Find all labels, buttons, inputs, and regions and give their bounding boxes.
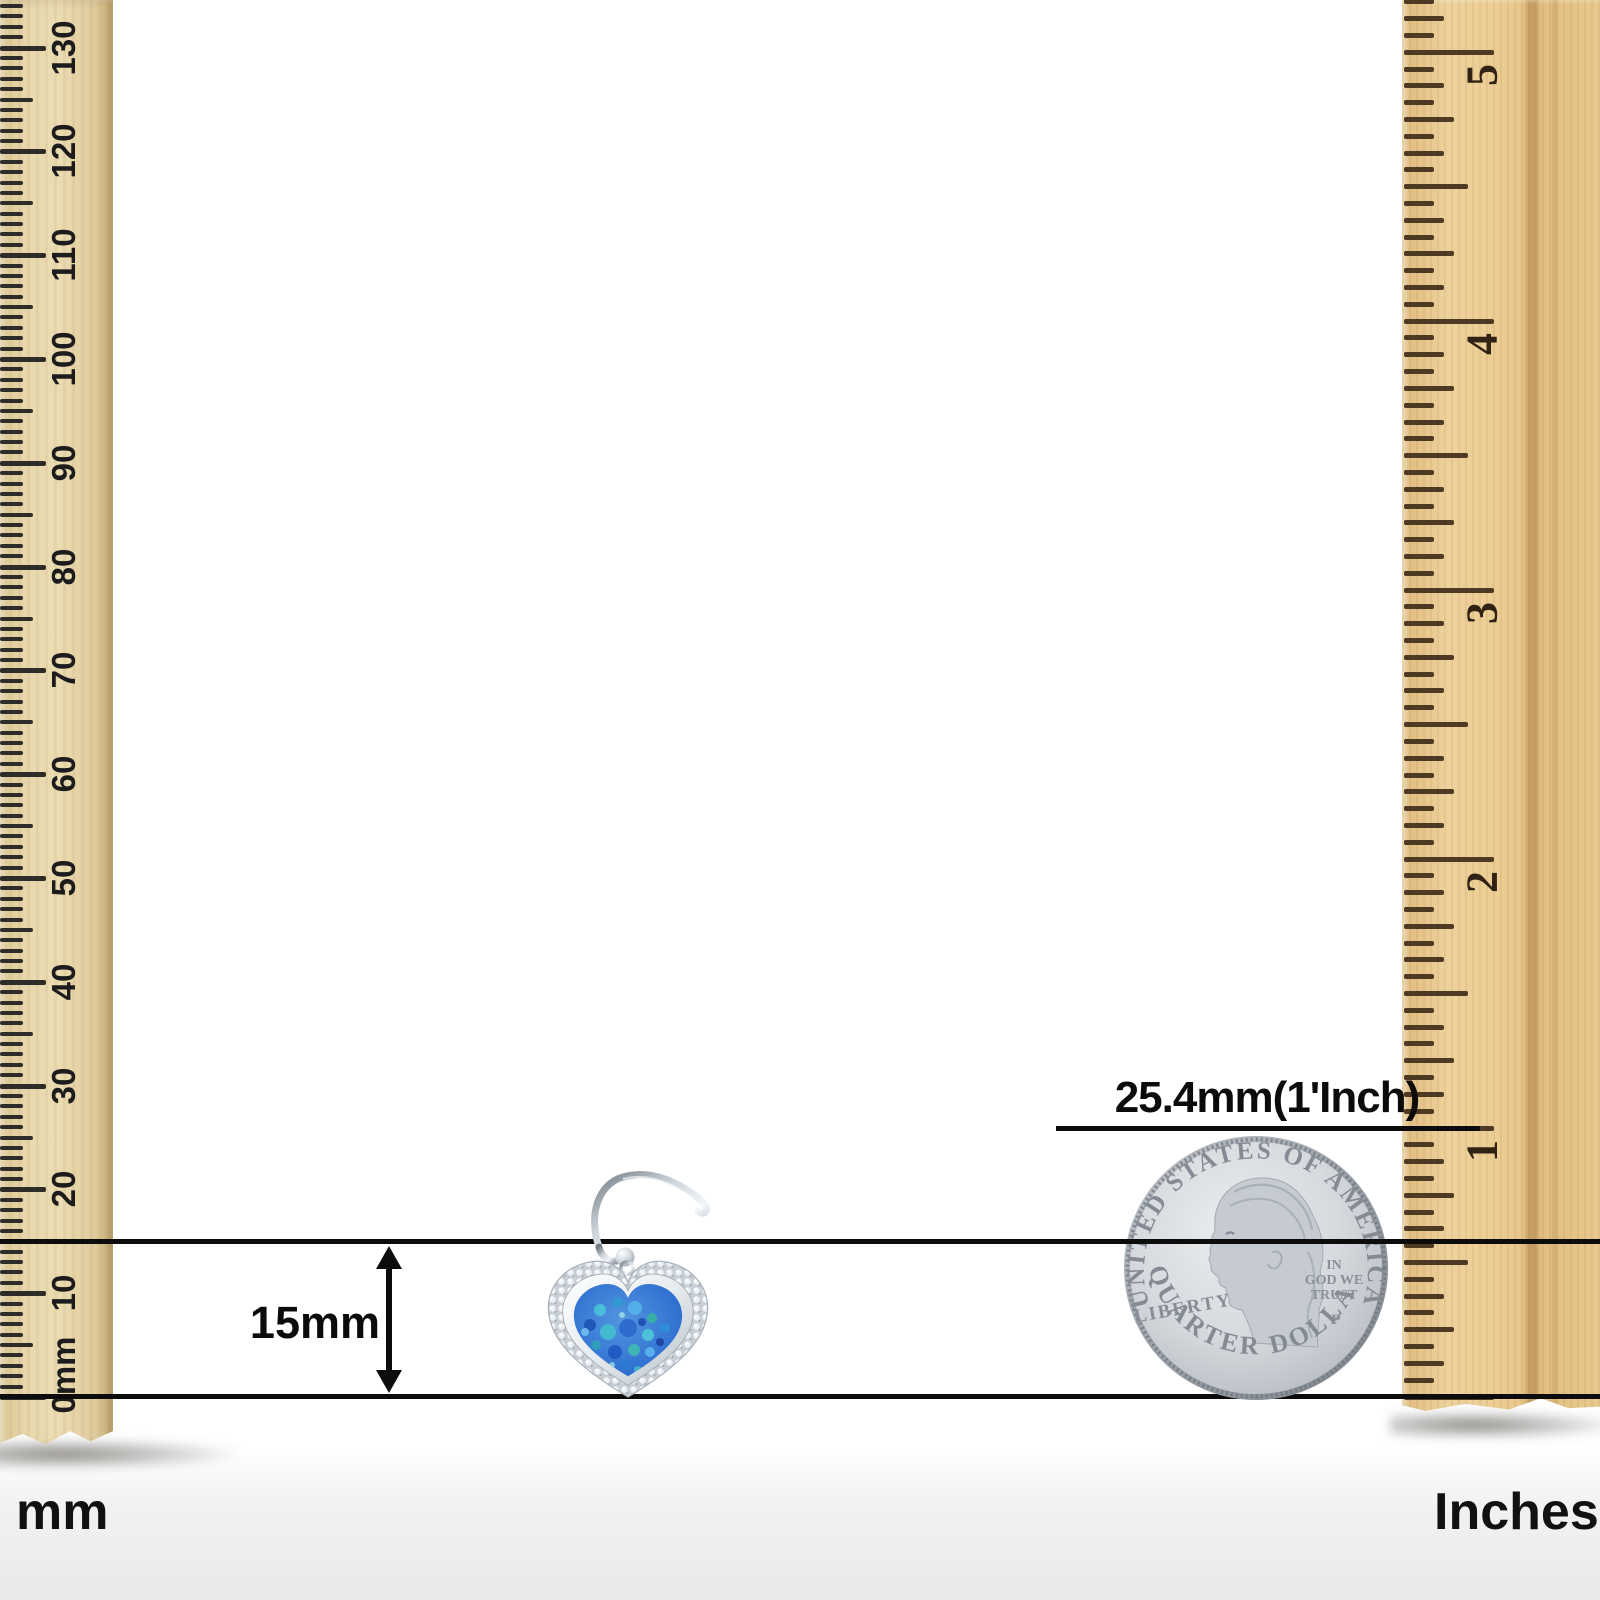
mm-tick	[0, 440, 23, 444]
size-reference-diagram: 0mm102030405060708090100110120130 12345	[0, 0, 1600, 1600]
mm-tick	[0, 1374, 23, 1378]
mm-tick	[0, 1229, 23, 1233]
inch-sub-tick	[1404, 924, 1454, 929]
mm-tick	[0, 56, 23, 60]
mm-tick	[0, 793, 23, 797]
mm-tick	[0, 938, 23, 942]
inch-sub-tick	[1404, 957, 1444, 962]
cm-tick	[0, 149, 46, 154]
mm-tick	[0, 1001, 23, 1005]
mm-tick	[0, 513, 33, 517]
mm-tick	[0, 855, 23, 859]
inch-sub-tick	[1404, 470, 1434, 475]
cm-tick	[0, 1187, 46, 1192]
inch-sub-tick	[1404, 184, 1468, 189]
mm-tick	[0, 814, 23, 818]
mm-tick	[0, 1322, 23, 1326]
inch-sub-tick	[1404, 218, 1444, 223]
mm-number-label: 80	[45, 548, 83, 585]
mm-tick	[0, 1146, 23, 1150]
coin-reference-label: 25.4mm(1'Inch)	[1080, 1073, 1454, 1123]
cm-tick	[0, 253, 46, 258]
inch-sub-tick	[1404, 823, 1444, 828]
inch-sub-tick	[1404, 907, 1434, 912]
inch-sub-tick	[1404, 403, 1434, 408]
inch-sub-tick	[1404, 167, 1434, 172]
inch-sub-tick	[1404, 1025, 1444, 1030]
inch-number-label: 4	[1457, 333, 1508, 355]
cm-tick	[0, 772, 46, 777]
mm-tick	[0, 1052, 23, 1056]
inch-sub-tick	[1404, 621, 1444, 626]
pendant-height-label: 15mm	[230, 1297, 380, 1349]
inch-sub-tick	[1404, 974, 1434, 979]
inch-sub-tick	[1404, 151, 1444, 156]
mm-tick	[0, 627, 23, 631]
inch-sub-tick	[1404, 1176, 1434, 1181]
footer-band	[0, 1452, 1600, 1600]
inch-sub-tick	[1404, 1210, 1434, 1215]
mm-tick	[0, 606, 23, 610]
mm-tick	[0, 1177, 23, 1181]
quarter-coin: UNITED STATES OF AMERICA QUARTER DOLLAR …	[1122, 1132, 1390, 1404]
mm-tick	[0, 305, 33, 309]
inch-sub-tick	[1404, 1344, 1434, 1349]
mm-ruler-shadow	[0, 1438, 250, 1470]
mm-tick	[0, 1385, 23, 1389]
mm-tick	[0, 347, 23, 351]
mm-tick	[0, 1312, 23, 1316]
inch-sub-tick	[1404, 420, 1444, 425]
mm-tick	[0, 4, 23, 8]
mm-tick	[0, 1302, 23, 1306]
mm-tick	[0, 544, 23, 548]
inch-sub-tick	[1404, 1058, 1454, 1063]
inch-sub-tick	[1404, 117, 1454, 122]
inch-sub-tick	[1404, 638, 1434, 643]
mm-tick	[0, 700, 23, 704]
mm-tick	[0, 824, 33, 828]
mm-tick	[0, 419, 23, 423]
mm-tick	[0, 1042, 23, 1046]
mm-number-label: 110	[45, 229, 83, 282]
inch-sub-tick	[1404, 739, 1434, 744]
mm-tick	[0, 1073, 23, 1077]
mm-tick	[0, 1104, 23, 1108]
mm-tick	[0, 201, 33, 205]
coin-motto-line1: IN	[1326, 1258, 1342, 1273]
mm-tick	[0, 741, 23, 745]
inch-sub-tick	[1404, 504, 1434, 509]
mm-tick	[0, 658, 23, 662]
mm-tick	[0, 378, 23, 382]
inch-sub-tick	[1404, 1361, 1444, 1366]
mm-tick	[0, 637, 23, 641]
mm-tick	[0, 1032, 33, 1036]
mm-number-label: 70	[45, 652, 83, 689]
cm-tick	[0, 357, 46, 362]
mm-tick	[0, 1063, 23, 1067]
inch-sub-tick	[1404, 604, 1434, 609]
inch-sub-tick	[1404, 100, 1434, 105]
mm-tick	[0, 264, 23, 268]
inch-sub-tick	[1404, 1277, 1434, 1282]
mm-ruler: 0mm102030405060708090100110120130	[0, 0, 113, 1447]
inch-sub-tick	[1404, 890, 1444, 895]
mm-tick	[0, 1011, 23, 1015]
inch-sub-tick	[1404, 1041, 1434, 1046]
inch-sub-tick	[1404, 268, 1434, 273]
mm-tick	[0, 315, 23, 319]
mm-tick	[0, 1343, 33, 1347]
inch-sub-tick	[1404, 67, 1434, 72]
mm-tick	[0, 77, 23, 81]
mm-tick	[0, 1353, 23, 1357]
inch-sub-tick	[1404, 1327, 1454, 1332]
heart-pendant	[548, 1261, 707, 1397]
mm-tick	[0, 1333, 23, 1337]
mm-tick	[0, 212, 23, 216]
mm-tick	[0, 1260, 23, 1264]
mm-tick	[0, 98, 33, 102]
mm-tick	[0, 720, 33, 724]
inch-mark-tick	[1404, 50, 1494, 55]
inch-sub-tick	[1404, 302, 1434, 307]
inch-sub-tick	[1404, 436, 1434, 441]
mm-tick	[0, 1115, 23, 1119]
inch-sub-tick	[1404, 1294, 1444, 1299]
inch-sub-tick	[1404, 33, 1434, 38]
mm-tick	[0, 648, 23, 652]
inch-sub-tick	[1404, 873, 1434, 878]
mm-tick	[0, 1136, 33, 1140]
mm-tick	[0, 160, 23, 164]
cm-tick	[0, 980, 46, 985]
mm-tick	[0, 87, 23, 91]
mm-number-label: 20	[45, 1171, 83, 1208]
mm-tick	[0, 1198, 23, 1202]
mm-tick	[0, 1219, 23, 1223]
inch-sub-tick	[1404, 1159, 1444, 1164]
inch-number-label: 2	[1457, 871, 1508, 893]
mm-tick	[0, 1250, 23, 1254]
mm-tick	[0, 118, 23, 122]
mm-tick	[0, 243, 23, 247]
mm-tick	[0, 129, 23, 133]
inch-sub-tick	[1404, 722, 1468, 727]
inch-number-label: 3	[1457, 602, 1508, 624]
mm-tick	[0, 66, 23, 70]
mm-tick	[0, 783, 23, 787]
mm-tick	[0, 689, 23, 693]
mm-tick	[0, 585, 23, 589]
inch-sub-tick	[1404, 840, 1434, 845]
mm-tick	[0, 502, 23, 506]
inch-sub-tick	[1404, 773, 1434, 778]
inch-sub-tick	[1404, 705, 1434, 710]
mm-tick	[0, 523, 23, 527]
inch-sub-tick	[1404, 1310, 1434, 1315]
cm-tick	[0, 876, 46, 881]
inches-unit-label: Inches	[1434, 1482, 1599, 1542]
mm-tick	[0, 617, 33, 621]
coin-motto-line3: TRUST	[1311, 1288, 1358, 1303]
mm-tick	[0, 232, 23, 236]
mm-tick	[0, 326, 23, 330]
opal-heart-earring	[530, 1160, 730, 1420]
mm-tick	[0, 35, 23, 39]
mm-tick	[0, 1156, 23, 1160]
mm-tick	[0, 191, 23, 195]
inch-sub-tick	[1404, 335, 1434, 340]
mm-tick	[0, 897, 23, 901]
mm-tick	[0, 803, 23, 807]
inch-sub-tick	[1404, 1226, 1444, 1231]
mm-tick	[0, 834, 23, 838]
mm-tick	[0, 866, 23, 870]
inch-sub-tick	[1404, 0, 1434, 4]
inch-sub-tick	[1404, 201, 1434, 206]
inch-sub-tick	[1404, 134, 1434, 139]
inch-mark-tick	[1404, 857, 1494, 862]
inch-sub-tick	[1404, 655, 1454, 660]
mm-tick	[0, 928, 33, 932]
inch-ruler-shadow	[1390, 1410, 1600, 1440]
inch-mark-tick	[1404, 319, 1494, 324]
cm-tick	[0, 565, 46, 570]
mm-tick	[0, 575, 23, 579]
mm-tick	[0, 108, 23, 112]
arrow-shaft	[386, 1262, 392, 1376]
mm-tick	[0, 336, 23, 340]
inch-sub-tick	[1404, 83, 1444, 88]
mm-tick	[0, 731, 23, 735]
inch-number-label: 1	[1457, 1140, 1508, 1162]
mm-tick	[0, 1094, 23, 1098]
mm-tick	[0, 295, 23, 299]
mm-tick	[0, 845, 23, 849]
inch-sub-tick	[1404, 285, 1444, 290]
mm-tick	[0, 471, 23, 475]
mm-tick	[0, 399, 23, 403]
mm-tick	[0, 949, 23, 953]
inch-sub-tick	[1404, 756, 1444, 761]
inch-sub-tick	[1404, 1008, 1434, 1013]
inch-sub-tick	[1404, 941, 1434, 946]
mm-tick	[0, 14, 23, 18]
inch-sub-tick	[1404, 235, 1434, 240]
inch-sub-tick	[1404, 1142, 1434, 1147]
inch-mark-tick	[1404, 588, 1494, 593]
mm-tick	[0, 367, 23, 371]
mm-tick	[0, 274, 23, 278]
mm-tick	[0, 1125, 23, 1129]
inch-sub-tick	[1404, 520, 1454, 525]
inch-sub-tick	[1404, 554, 1444, 559]
inch-sub-tick	[1404, 1193, 1454, 1198]
mm-tick	[0, 482, 23, 486]
mm-tick	[0, 181, 23, 185]
mm-tick	[0, 1167, 23, 1171]
mm-tick	[0, 1364, 23, 1368]
mm-tick	[0, 990, 23, 994]
mm-number-label: 30	[45, 1067, 83, 1104]
mm-number-label: 60	[45, 756, 83, 793]
inch-sub-tick	[1404, 16, 1444, 21]
arrow-down-icon	[376, 1370, 402, 1393]
mm-number-label: 40	[45, 963, 83, 1000]
ear-wire-hook	[595, 1175, 707, 1274]
cm-tick	[0, 46, 46, 51]
mm-tick	[0, 969, 23, 973]
inch-sub-tick	[1404, 369, 1434, 374]
inch-sub-tick	[1404, 537, 1434, 542]
inch-sub-tick	[1404, 806, 1434, 811]
mm-unit-label: mm	[16, 1482, 108, 1542]
mm-tick	[0, 679, 23, 683]
cm-tick	[0, 1291, 46, 1296]
mm-tick	[0, 596, 23, 600]
inch-sub-tick	[1404, 1378, 1434, 1383]
mm-number-label: 10	[45, 1275, 83, 1312]
inch-reference-line	[1056, 1126, 1480, 1131]
mm-tick	[0, 1208, 23, 1212]
mm-number-label: 100	[45, 331, 83, 386]
inch-sub-tick	[1404, 251, 1454, 256]
mm-tick	[0, 492, 23, 496]
mm-tick	[0, 886, 23, 890]
mm-number-label: 130	[45, 20, 83, 75]
inch-number-label: 5	[1457, 64, 1508, 86]
mm-tick	[0, 170, 23, 174]
mm-tick	[0, 1021, 23, 1025]
measurement-line-top	[0, 1239, 1600, 1244]
coin-motto-line2: GOD WE	[1305, 1273, 1363, 1288]
inch-sub-tick	[1404, 386, 1454, 391]
inch-sub-tick	[1404, 571, 1434, 576]
mm-tick	[0, 388, 23, 392]
inch-ruler: 12345	[1402, 0, 1600, 1418]
mm-tick	[0, 907, 23, 911]
mm-tick	[0, 139, 23, 143]
mm-zero-label: 0mm	[45, 1336, 83, 1413]
inch-sub-tick	[1404, 487, 1444, 492]
mm-tick	[0, 533, 23, 537]
inch-sub-tick	[1404, 672, 1434, 677]
mm-number-label: 50	[45, 860, 83, 897]
mm-tick	[0, 1281, 23, 1285]
inch-sub-tick	[1404, 991, 1468, 996]
cm-tick	[0, 461, 46, 466]
mm-number-label: 90	[45, 444, 83, 481]
mm-tick	[0, 222, 23, 226]
inch-sub-tick	[1404, 352, 1444, 357]
mm-tick	[0, 751, 23, 755]
mm-tick	[0, 430, 23, 434]
wood-grain-streak	[1552, 0, 1557, 1418]
inch-sub-tick	[1404, 789, 1454, 794]
coin-mint-mark: P	[1331, 1312, 1340, 1328]
mm-number-label: 120	[45, 124, 83, 179]
mm-tick	[0, 710, 23, 714]
inch-sub-tick	[1404, 453, 1468, 458]
inch-sub-tick	[1404, 1260, 1468, 1265]
mm-tick	[0, 284, 23, 288]
mm-tick	[0, 25, 23, 29]
mm-tick	[0, 409, 33, 413]
wood-grain-streak	[1526, 0, 1538, 1418]
mm-tick	[0, 554, 23, 558]
cm-tick	[0, 1084, 46, 1089]
mm-tick	[0, 918, 23, 922]
mm-tick	[0, 1270, 23, 1274]
mm-tick	[0, 959, 23, 963]
cm-tick	[0, 668, 46, 673]
inch-sub-tick	[1404, 688, 1444, 693]
mm-tick	[0, 450, 23, 454]
mm-tick	[0, 762, 23, 766]
